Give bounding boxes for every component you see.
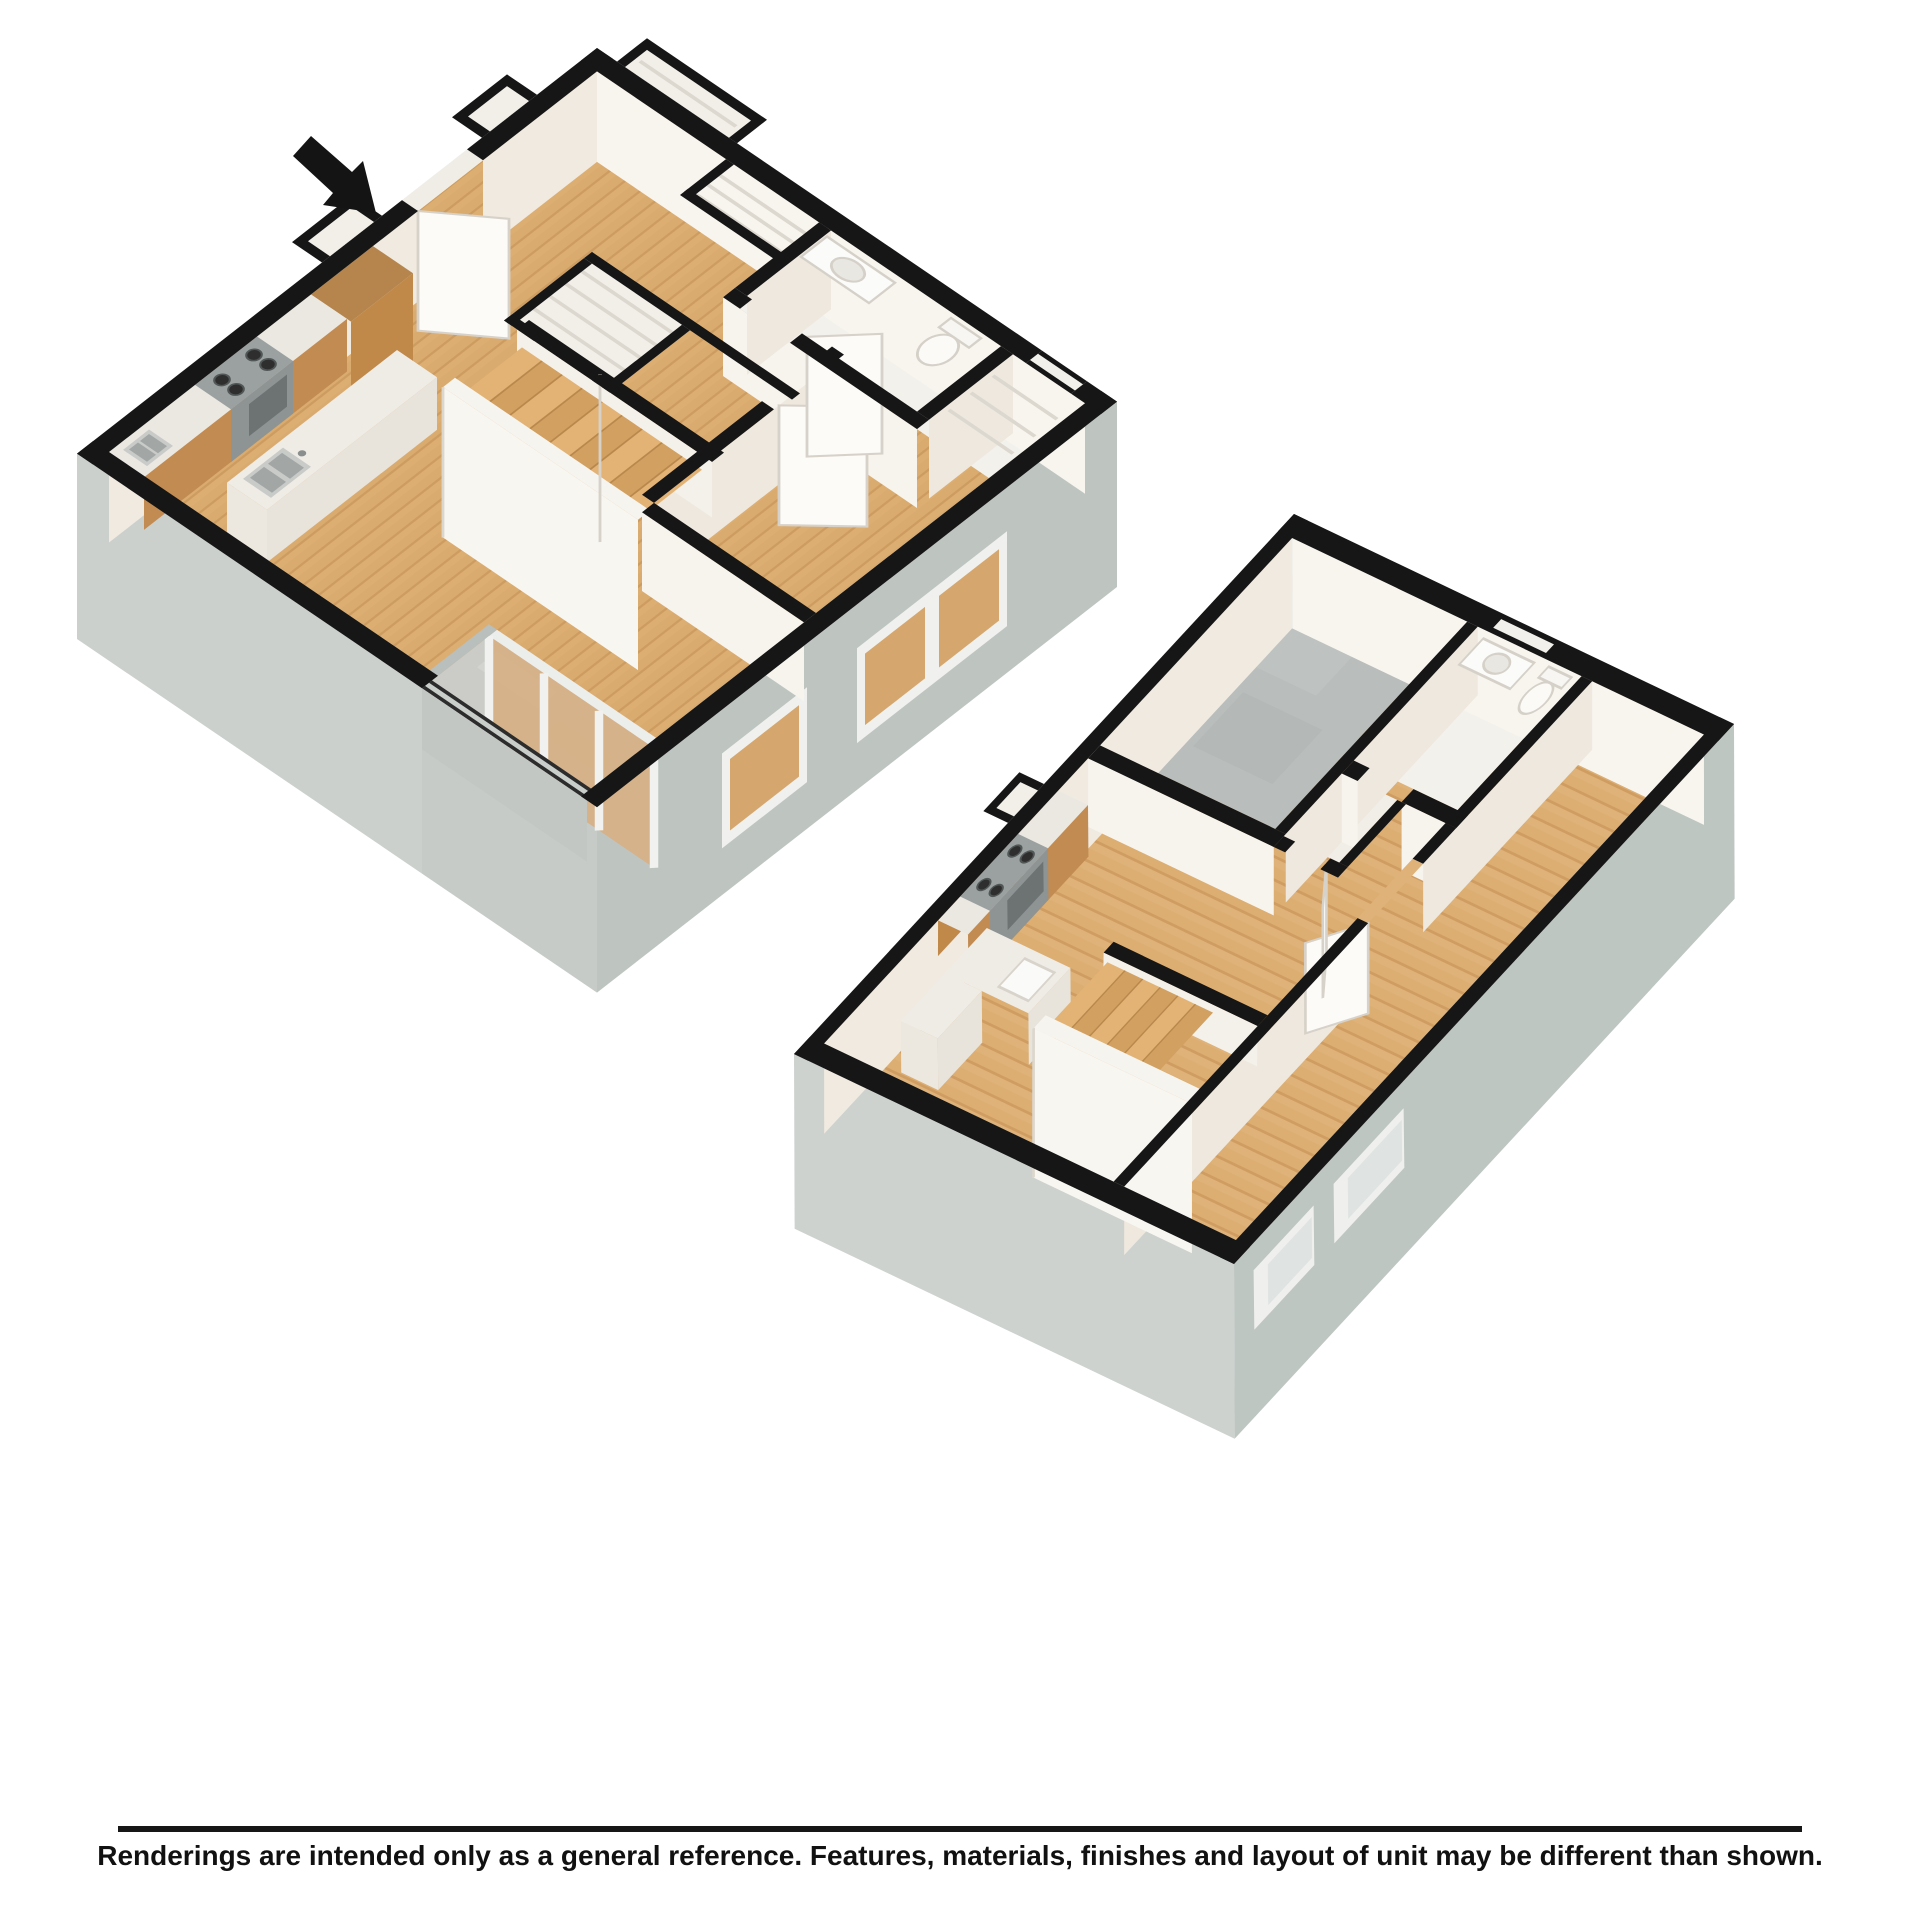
- entry-arrow-icon: [293, 136, 376, 213]
- floorplan-canvas: [0, 0, 1920, 1920]
- floorplan-sheet: Renderings are intended only as a genera…: [0, 0, 1920, 1920]
- disclaimer-text: Renderings are intended only as a genera…: [60, 1840, 1860, 1872]
- divider-line: [118, 1826, 1802, 1832]
